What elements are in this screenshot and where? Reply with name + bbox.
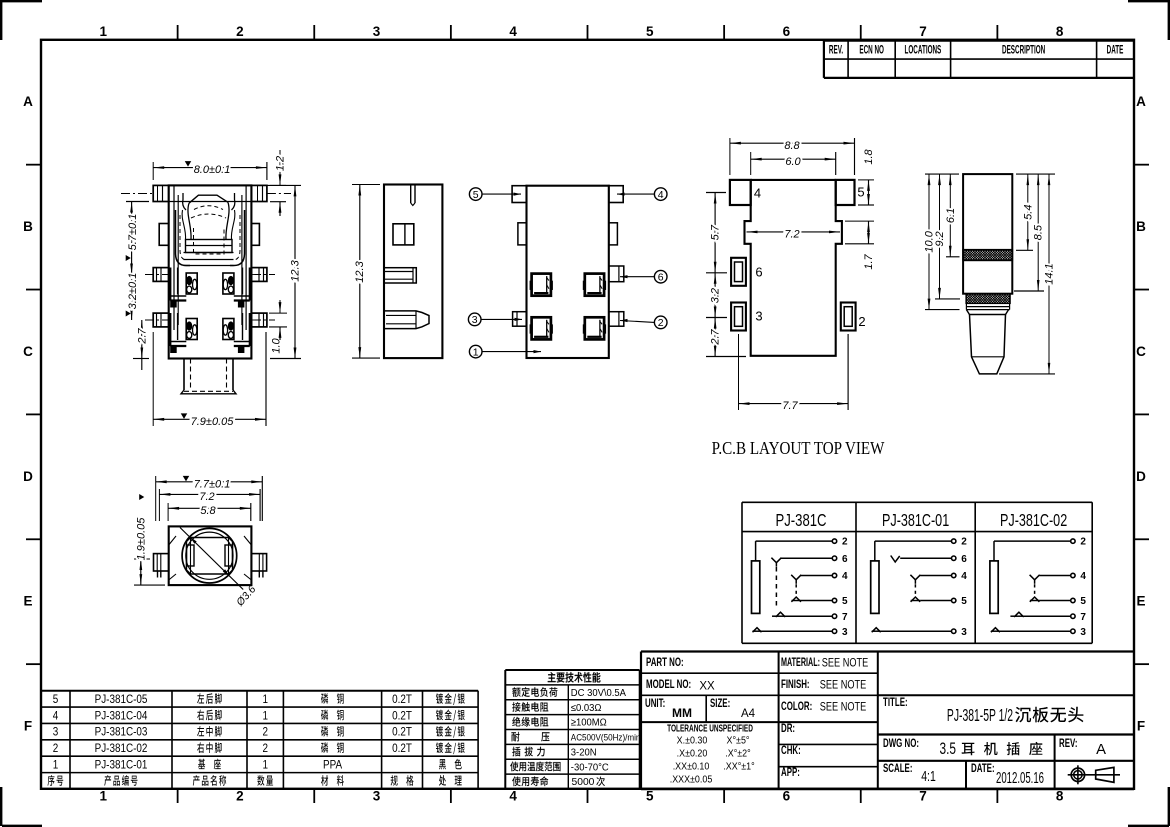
svg-text:7: 7 <box>919 24 927 39</box>
svg-text:4: 4 <box>658 189 664 201</box>
svg-text:UNIT:: UNIT: <box>645 698 665 711</box>
svg-text:FINISH:: FINISH: <box>781 679 810 692</box>
svg-text:1: 1 <box>100 24 108 39</box>
svg-text:TOLERANCE UNSPECIFIED: TOLERANCE UNSPECIFIED <box>667 722 753 734</box>
svg-text:2: 2 <box>858 314 865 329</box>
svg-text:8.0±0.1: 8.0±0.1 <box>194 164 231 176</box>
svg-text:7.2: 7.2 <box>199 491 214 503</box>
svg-text:6: 6 <box>842 554 848 565</box>
svg-text:PART NO:: PART NO: <box>646 657 684 670</box>
svg-text:0.2T: 0.2T <box>392 726 412 739</box>
svg-text:REV:: REV: <box>1059 738 1077 751</box>
svg-text:5000: 5000 <box>572 777 595 788</box>
svg-text:7: 7 <box>842 612 848 623</box>
svg-text:E: E <box>1136 594 1145 609</box>
svg-text:5.8: 5.8 <box>200 505 216 517</box>
svg-text:0.2T: 0.2T <box>392 710 412 723</box>
svg-text:2: 2 <box>236 789 244 804</box>
svg-text:SCALE:: SCALE: <box>883 763 912 776</box>
svg-text:4: 4 <box>509 24 517 39</box>
svg-text:7: 7 <box>919 789 927 804</box>
svg-text:8: 8 <box>1056 24 1064 39</box>
svg-text:1.0: 1.0 <box>271 337 283 353</box>
svg-text:6.1: 6.1 <box>945 208 957 223</box>
svg-text:3: 3 <box>1080 627 1086 638</box>
svg-text:2: 2 <box>1080 537 1086 548</box>
svg-text:1: 1 <box>100 789 108 804</box>
svg-text:APP:: APP: <box>781 767 800 780</box>
svg-text:6.0: 6.0 <box>785 156 801 168</box>
svg-text:SEE NOTE: SEE NOTE <box>820 680 867 692</box>
svg-text:5: 5 <box>842 596 848 607</box>
svg-text:PJ-381-5P 1/2: PJ-381-5P 1/2 <box>947 706 1013 725</box>
svg-text:D: D <box>23 469 33 484</box>
svg-text:2: 2 <box>658 317 664 329</box>
svg-text:7.9±0.05: 7.9±0.05 <box>191 416 235 428</box>
svg-text:A: A <box>1136 94 1146 109</box>
svg-text:PJ-381C-01: PJ-381C-01 <box>882 511 949 531</box>
svg-text:2: 2 <box>842 537 848 548</box>
svg-text:2: 2 <box>53 742 59 755</box>
svg-text:8: 8 <box>1056 789 1064 804</box>
svg-text:DC 30V\0.5A: DC 30V\0.5A <box>571 688 627 699</box>
svg-text:DATE:: DATE: <box>971 763 995 776</box>
svg-text:2: 2 <box>961 537 967 548</box>
svg-text:3: 3 <box>373 24 381 39</box>
svg-text:4: 4 <box>509 789 517 804</box>
svg-text:≥100MΩ: ≥100MΩ <box>571 717 607 728</box>
svg-text:12.3: 12.3 <box>354 260 366 282</box>
svg-text:5: 5 <box>646 789 654 804</box>
svg-text:5: 5 <box>1080 596 1086 607</box>
svg-text:5: 5 <box>961 596 967 607</box>
svg-text:PJ-381C-01: PJ-381C-01 <box>95 759 148 772</box>
svg-text:LOCATIONS: LOCATIONS <box>905 44 942 56</box>
svg-text:PJ-381C-03: PJ-381C-03 <box>95 726 148 739</box>
svg-text:PJ-381C: PJ-381C <box>775 511 826 530</box>
svg-text:5: 5 <box>473 189 479 201</box>
svg-text:SEE NOTE: SEE NOTE <box>822 658 869 670</box>
svg-text:8.5: 8.5 <box>1033 224 1045 240</box>
svg-text:TITLE:: TITLE: <box>883 697 908 710</box>
svg-text:REV.: REV. <box>829 44 843 56</box>
svg-text:DATE: DATE <box>1107 44 1124 56</box>
svg-text:A: A <box>23 94 33 109</box>
svg-text:5.7: 5.7 <box>710 224 722 240</box>
svg-text:4: 4 <box>53 710 59 723</box>
svg-text:D: D <box>1136 469 1146 484</box>
svg-text:3: 3 <box>755 309 762 324</box>
svg-text:PPA: PPA <box>323 759 343 772</box>
svg-text:2.7: 2.7 <box>136 327 148 344</box>
svg-text:MATERIAL:: MATERIAL: <box>781 656 820 669</box>
svg-text:DWG NO:: DWG NO: <box>883 738 919 751</box>
svg-text:.X±0.20: .X±0.20 <box>677 748 708 760</box>
svg-text:MM: MM <box>672 706 692 720</box>
svg-text:F: F <box>1137 719 1145 734</box>
svg-text:5: 5 <box>646 24 654 39</box>
svg-text:2.7: 2.7 <box>710 328 722 345</box>
svg-text:AC500V(50Hz)/min: AC500V(50Hz)/min <box>571 732 641 742</box>
svg-text:C: C <box>1136 344 1146 359</box>
svg-text:CHK:: CHK: <box>781 745 801 758</box>
svg-text:7.2: 7.2 <box>784 229 799 241</box>
svg-text:6: 6 <box>755 265 762 280</box>
svg-text:7.7±0.1: 7.7±0.1 <box>194 478 231 490</box>
svg-text:X.±0.30: X.±0.30 <box>677 735 708 747</box>
svg-text:XX: XX <box>699 681 715 693</box>
svg-text:3: 3 <box>472 314 478 326</box>
svg-text:2012.05.16: 2012.05.16 <box>996 768 1044 786</box>
svg-text:4: 4 <box>961 571 967 582</box>
svg-text:7.7: 7.7 <box>782 400 798 412</box>
svg-text:B: B <box>1136 219 1146 234</box>
svg-text:5.4: 5.4 <box>1022 205 1034 220</box>
svg-text:3: 3 <box>53 726 59 739</box>
svg-text:C: C <box>23 344 33 359</box>
svg-text:X°±5°: X°±5° <box>727 735 750 747</box>
svg-text:3-20N: 3-20N <box>571 747 597 758</box>
svg-text:4:1: 4:1 <box>921 767 936 784</box>
svg-text:1.2: 1.2 <box>274 156 286 171</box>
svg-text:5: 5 <box>857 185 864 200</box>
svg-text:.XXX±0.05: .XXX±0.05 <box>670 774 713 786</box>
svg-text:3.2±0.1: 3.2±0.1 <box>127 273 139 310</box>
svg-text:4: 4 <box>842 571 848 582</box>
svg-text:1.7: 1.7 <box>863 253 875 269</box>
svg-text:4: 4 <box>1080 571 1086 582</box>
svg-text:ECN NO: ECN NO <box>859 44 884 56</box>
svg-text:.X°±2°: .X°±2° <box>725 748 751 760</box>
svg-text:PJ-381C-02: PJ-381C-02 <box>95 742 148 755</box>
svg-text:8.8: 8.8 <box>784 140 800 152</box>
svg-text:0.2T: 0.2T <box>392 693 412 706</box>
svg-text:5: 5 <box>53 693 59 706</box>
svg-text:F: F <box>24 719 32 734</box>
svg-text:-30-70°C: -30-70°C <box>571 762 609 773</box>
svg-text:6: 6 <box>961 554 967 565</box>
svg-text:5.7±0.1: 5.7±0.1 <box>127 214 139 251</box>
svg-text:6: 6 <box>783 24 791 39</box>
svg-text:.XX°±1°: .XX°±1° <box>723 761 754 773</box>
svg-text:SIZE:: SIZE: <box>710 698 730 711</box>
svg-text:2: 2 <box>262 726 268 739</box>
svg-text:P.C.B LAYOUT TOP VIEW: P.C.B LAYOUT TOP VIEW <box>712 438 885 459</box>
svg-text:3.2: 3.2 <box>710 288 722 303</box>
svg-text:7: 7 <box>1080 612 1086 623</box>
svg-text:SEE NOTE: SEE NOTE <box>820 702 867 714</box>
svg-text:A: A <box>1096 742 1106 758</box>
svg-text:6: 6 <box>658 272 664 284</box>
svg-text:1.8: 1.8 <box>863 148 875 164</box>
svg-text:3.5: 3.5 <box>939 740 956 759</box>
svg-text:PJ-381C-05: PJ-381C-05 <box>95 693 148 706</box>
svg-text:≤0.03Ω: ≤0.03Ω <box>571 702 602 713</box>
svg-text:1: 1 <box>53 759 59 772</box>
svg-text:1: 1 <box>262 693 268 706</box>
svg-text:1.9±0.05: 1.9±0.05 <box>135 517 147 561</box>
svg-text:DESCRIPTION: DESCRIPTION <box>1002 44 1045 56</box>
svg-text:14.1: 14.1 <box>1044 263 1056 284</box>
svg-text:COLOR:: COLOR: <box>781 701 812 714</box>
svg-text:6: 6 <box>783 789 791 804</box>
svg-text:PJ-381C-04: PJ-381C-04 <box>95 710 148 723</box>
svg-text:2: 2 <box>262 742 268 755</box>
svg-text:1: 1 <box>473 346 479 358</box>
svg-text:12.3: 12.3 <box>289 259 301 281</box>
svg-text:DR:: DR: <box>781 723 795 736</box>
svg-text:E: E <box>23 594 32 609</box>
svg-text:2: 2 <box>236 24 244 39</box>
svg-text:1: 1 <box>262 759 268 772</box>
svg-text:.XX±0.10: .XX±0.10 <box>673 761 710 773</box>
svg-text:3: 3 <box>373 789 381 804</box>
svg-text:4: 4 <box>754 186 761 201</box>
svg-text:A4: A4 <box>741 708 756 720</box>
svg-text:B: B <box>23 219 33 234</box>
svg-text:MODEL NO:: MODEL NO: <box>646 679 691 692</box>
svg-text:9.2: 9.2 <box>934 231 946 246</box>
svg-text:PJ-381C-02: PJ-381C-02 <box>1000 511 1067 531</box>
svg-text:3: 3 <box>842 627 848 638</box>
svg-text:3: 3 <box>961 627 967 638</box>
svg-text:0.2T: 0.2T <box>392 742 412 755</box>
svg-text:1: 1 <box>262 710 268 723</box>
